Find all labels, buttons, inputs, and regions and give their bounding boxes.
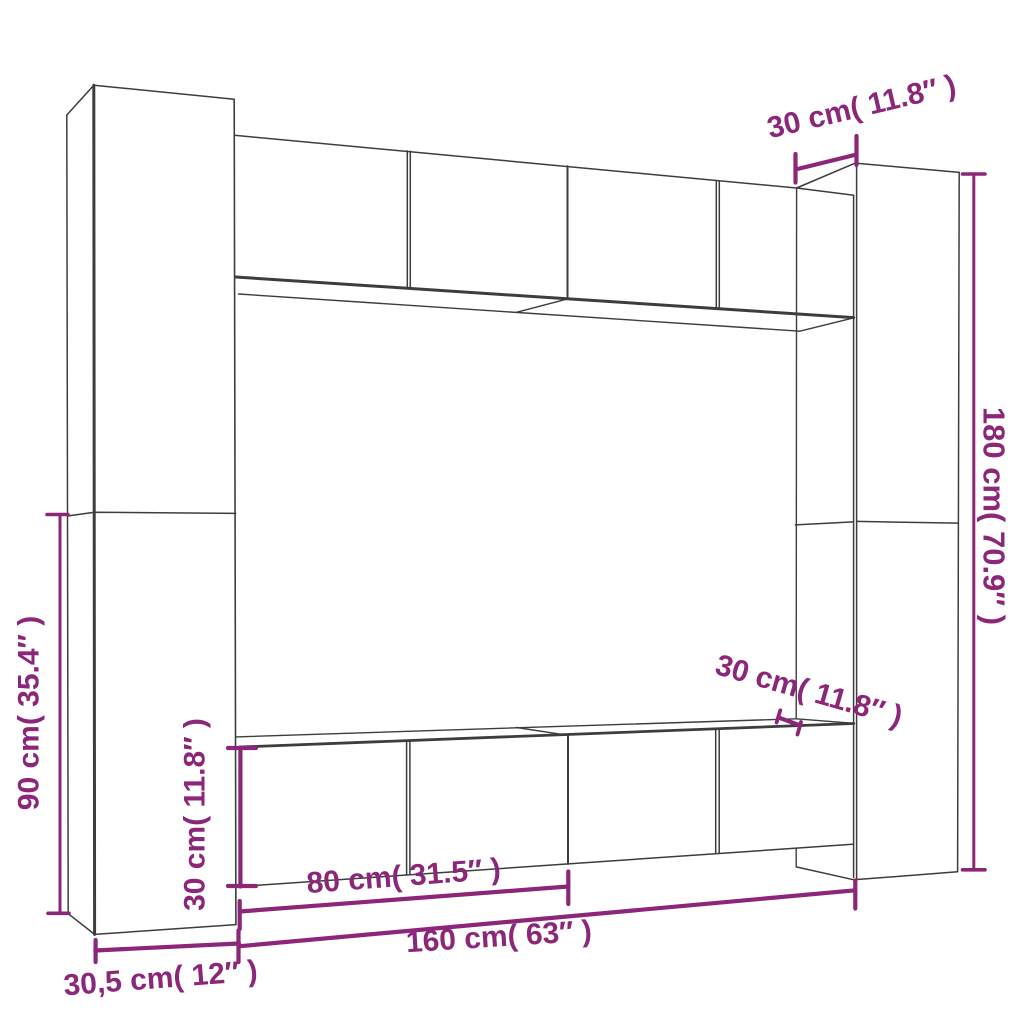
svg-text:180 cm( 70.9″ ): 180 cm( 70.9″ ): [976, 407, 1011, 625]
svg-text:30 cm( 11.8″ ): 30 cm( 11.8″ ): [179, 718, 212, 911]
svg-text:30,5 cm( 12″ ): 30,5 cm( 12″ ): [62, 955, 258, 1003]
svg-text:160 cm( 63″ ): 160 cm( 63″ ): [405, 915, 593, 960]
svg-text:30 cm( 11.8″ ): 30 cm( 11.8″ ): [764, 69, 959, 145]
svg-text:90 cm( 35.4″ ): 90 cm( 35.4″ ): [12, 616, 45, 810]
